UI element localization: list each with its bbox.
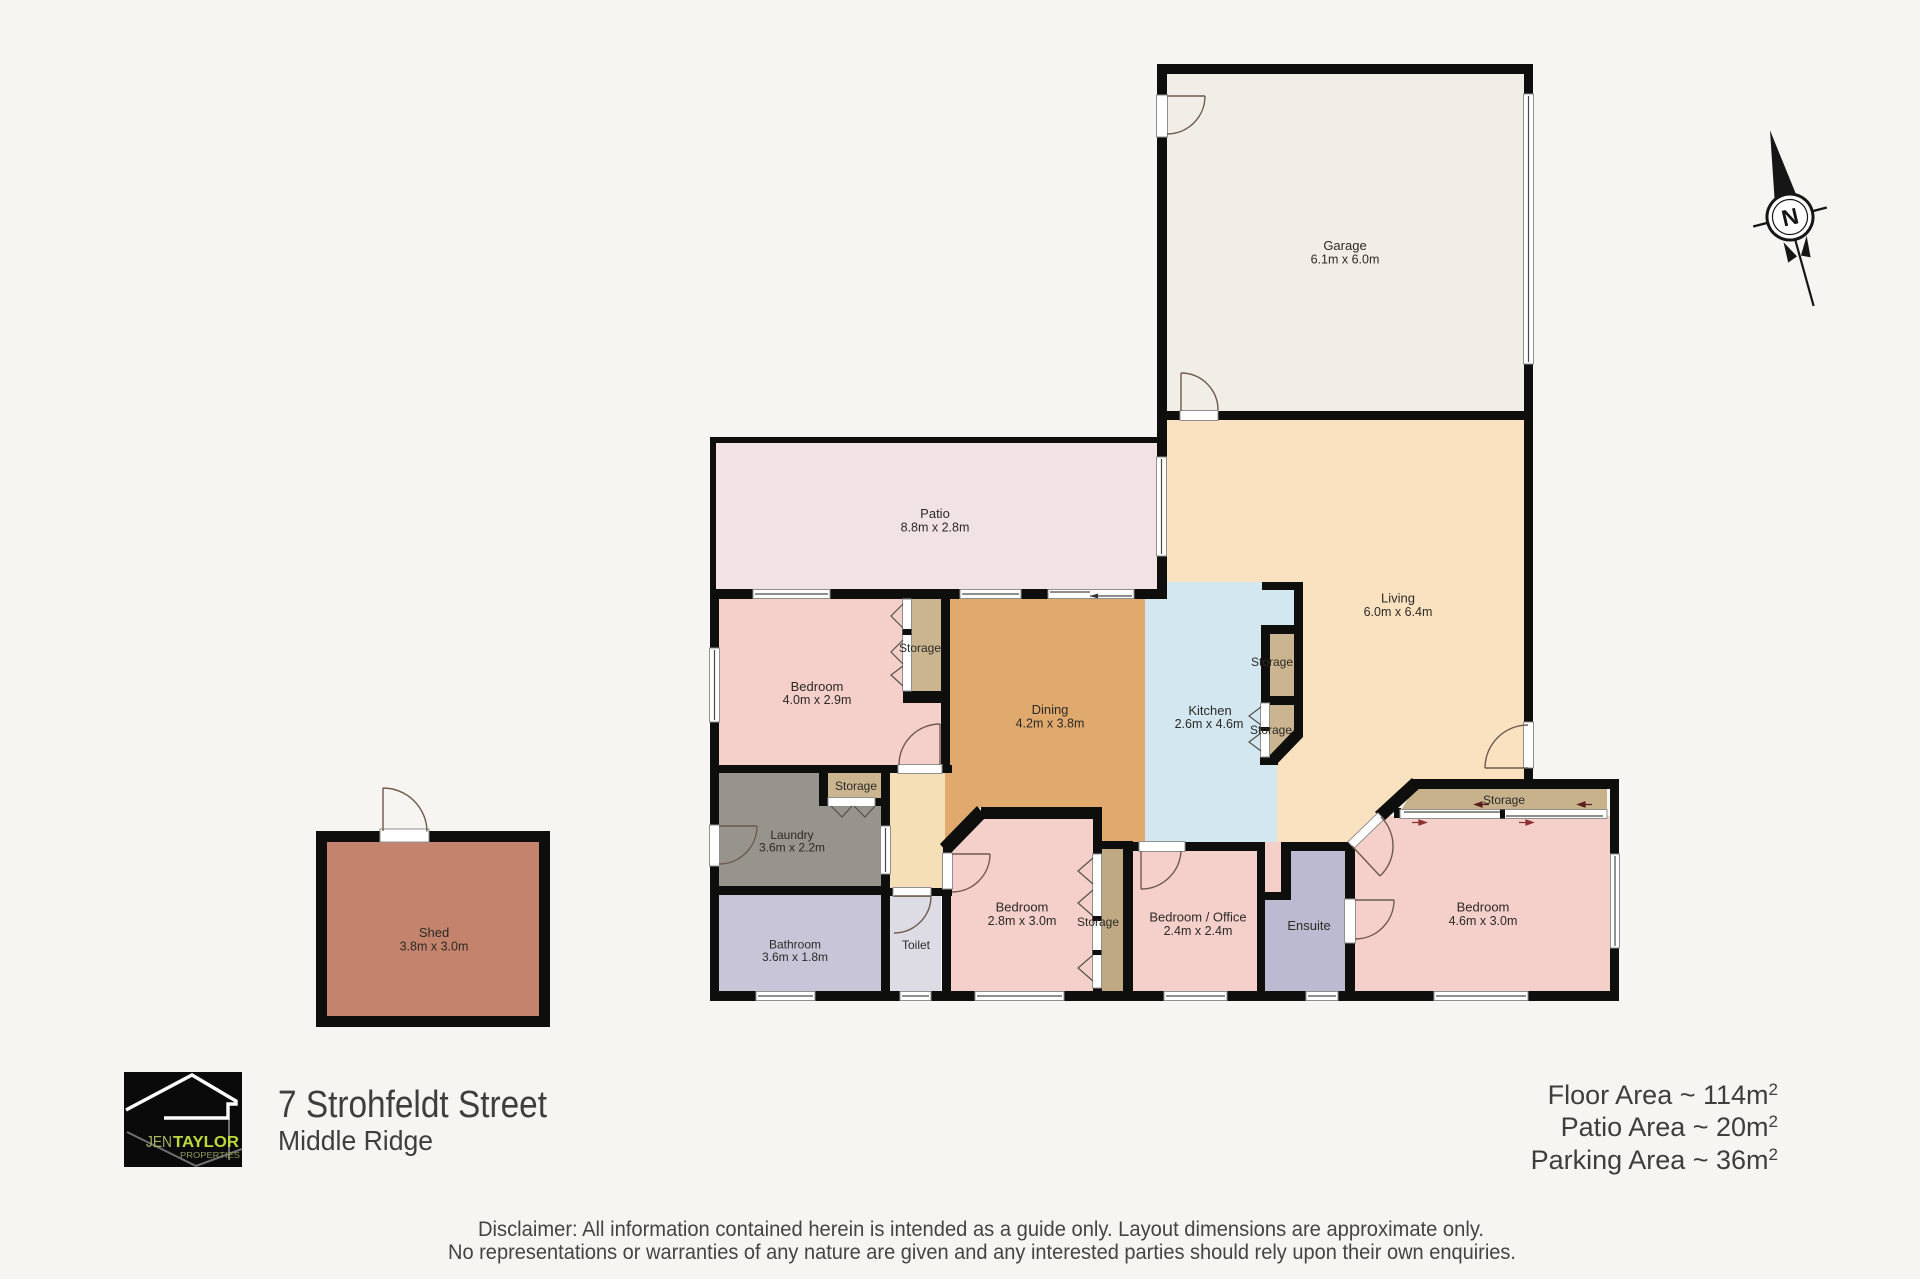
svg-text:Storage: Storage: [1250, 723, 1292, 737]
svg-text:Bedroom: Bedroom: [791, 679, 844, 694]
svg-text:3.8m x 3.0m: 3.8m x 3.0m: [400, 940, 469, 954]
svg-text:6.1m x 6.0m: 6.1m x 6.0m: [1311, 253, 1380, 267]
svg-text:4.2m x 3.8m: 4.2m x 3.8m: [1016, 717, 1085, 731]
svg-text:4.0m x 2.9m: 4.0m x 2.9m: [783, 693, 852, 707]
svg-text:Disclaimer: All information co: Disclaimer: All information contained he…: [478, 1218, 1484, 1241]
svg-text:2.4m x 2.4m: 2.4m x 2.4m: [1164, 924, 1233, 938]
svg-text:Garage: Garage: [1323, 238, 1366, 253]
svg-text:3.6m x 2.2m: 3.6m x 2.2m: [759, 841, 825, 855]
svg-text:6.0m x 6.4m: 6.0m x 6.4m: [1364, 605, 1433, 619]
svg-text:Storage: Storage: [835, 779, 877, 793]
svg-text:No representations or warranti: No representations or warranties of any …: [448, 1241, 1516, 1264]
svg-text:Ensuite: Ensuite: [1287, 918, 1330, 933]
svg-text:Storage: Storage: [1483, 793, 1525, 807]
svg-text:TAYLOR: TAYLOR: [173, 1134, 239, 1151]
svg-text:8.8m x 2.8m: 8.8m x 2.8m: [901, 521, 970, 535]
svg-text:Storage: Storage: [899, 641, 941, 655]
svg-text:2.8m x 3.0m: 2.8m x 3.0m: [988, 914, 1057, 928]
svg-text:Bedroom: Bedroom: [996, 900, 1049, 915]
svg-text:JEN: JEN: [146, 1134, 172, 1151]
svg-text:Toilet: Toilet: [902, 938, 931, 952]
svg-text:Floor Area ~ 114m2: Floor Area ~ 114m2: [1548, 1080, 1778, 1110]
svg-text:Dining: Dining: [1032, 702, 1069, 717]
svg-text:Bedroom: Bedroom: [1457, 900, 1510, 915]
svg-text:Storage: Storage: [1251, 655, 1293, 669]
svg-text:Bedroom / Office: Bedroom / Office: [1149, 910, 1246, 925]
svg-text:Patio Area ~ 20m2: Patio Area ~ 20m2: [1561, 1112, 1778, 1142]
svg-text:Kitchen: Kitchen: [1188, 703, 1231, 718]
svg-text:Storage: Storage: [1077, 915, 1119, 929]
svg-text:Patio: Patio: [920, 506, 950, 521]
svg-text:4.6m x 3.0m: 4.6m x 3.0m: [1449, 914, 1518, 928]
svg-text:Parking Area ~ 36m2: Parking Area ~ 36m2: [1531, 1145, 1778, 1175]
svg-text:Middle Ridge: Middle Ridge: [278, 1125, 433, 1156]
svg-text:Living: Living: [1381, 591, 1415, 606]
svg-text:2.6m x 4.6m: 2.6m x 4.6m: [1175, 717, 1244, 731]
svg-text:7 Strohfeldt Street: 7 Strohfeldt Street: [278, 1084, 547, 1126]
svg-text:PROPERTIES: PROPERTIES: [180, 1150, 240, 1160]
svg-text:Shed: Shed: [419, 925, 449, 940]
svg-text:3.6m x 1.8m: 3.6m x 1.8m: [762, 950, 828, 964]
